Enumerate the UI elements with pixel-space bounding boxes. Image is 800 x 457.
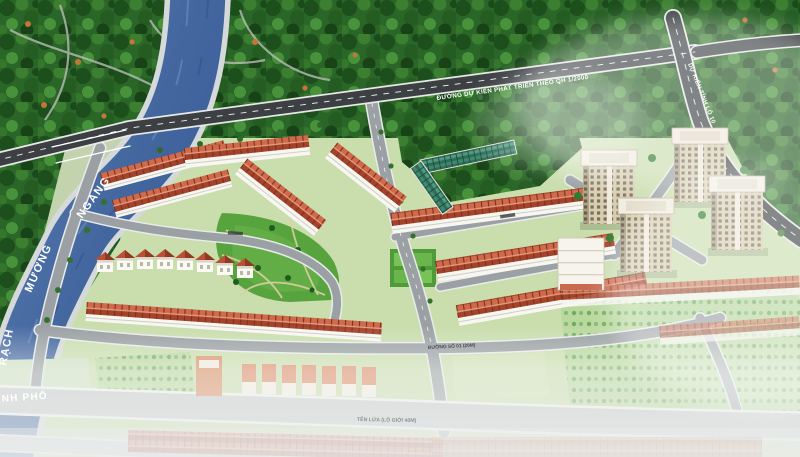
- white-building: [558, 238, 604, 290]
- masterplan-map: NGANG MƯƠNG RẠCH ĐƯỜNG DỰ KIẾN PHÁT TRIỂ…: [0, 0, 800, 457]
- masterplan-screenshot: NGANG MƯƠNG RẠCH ĐƯỜNG DỰ KIẾN PHÁT TRIỂ…: [0, 0, 800, 457]
